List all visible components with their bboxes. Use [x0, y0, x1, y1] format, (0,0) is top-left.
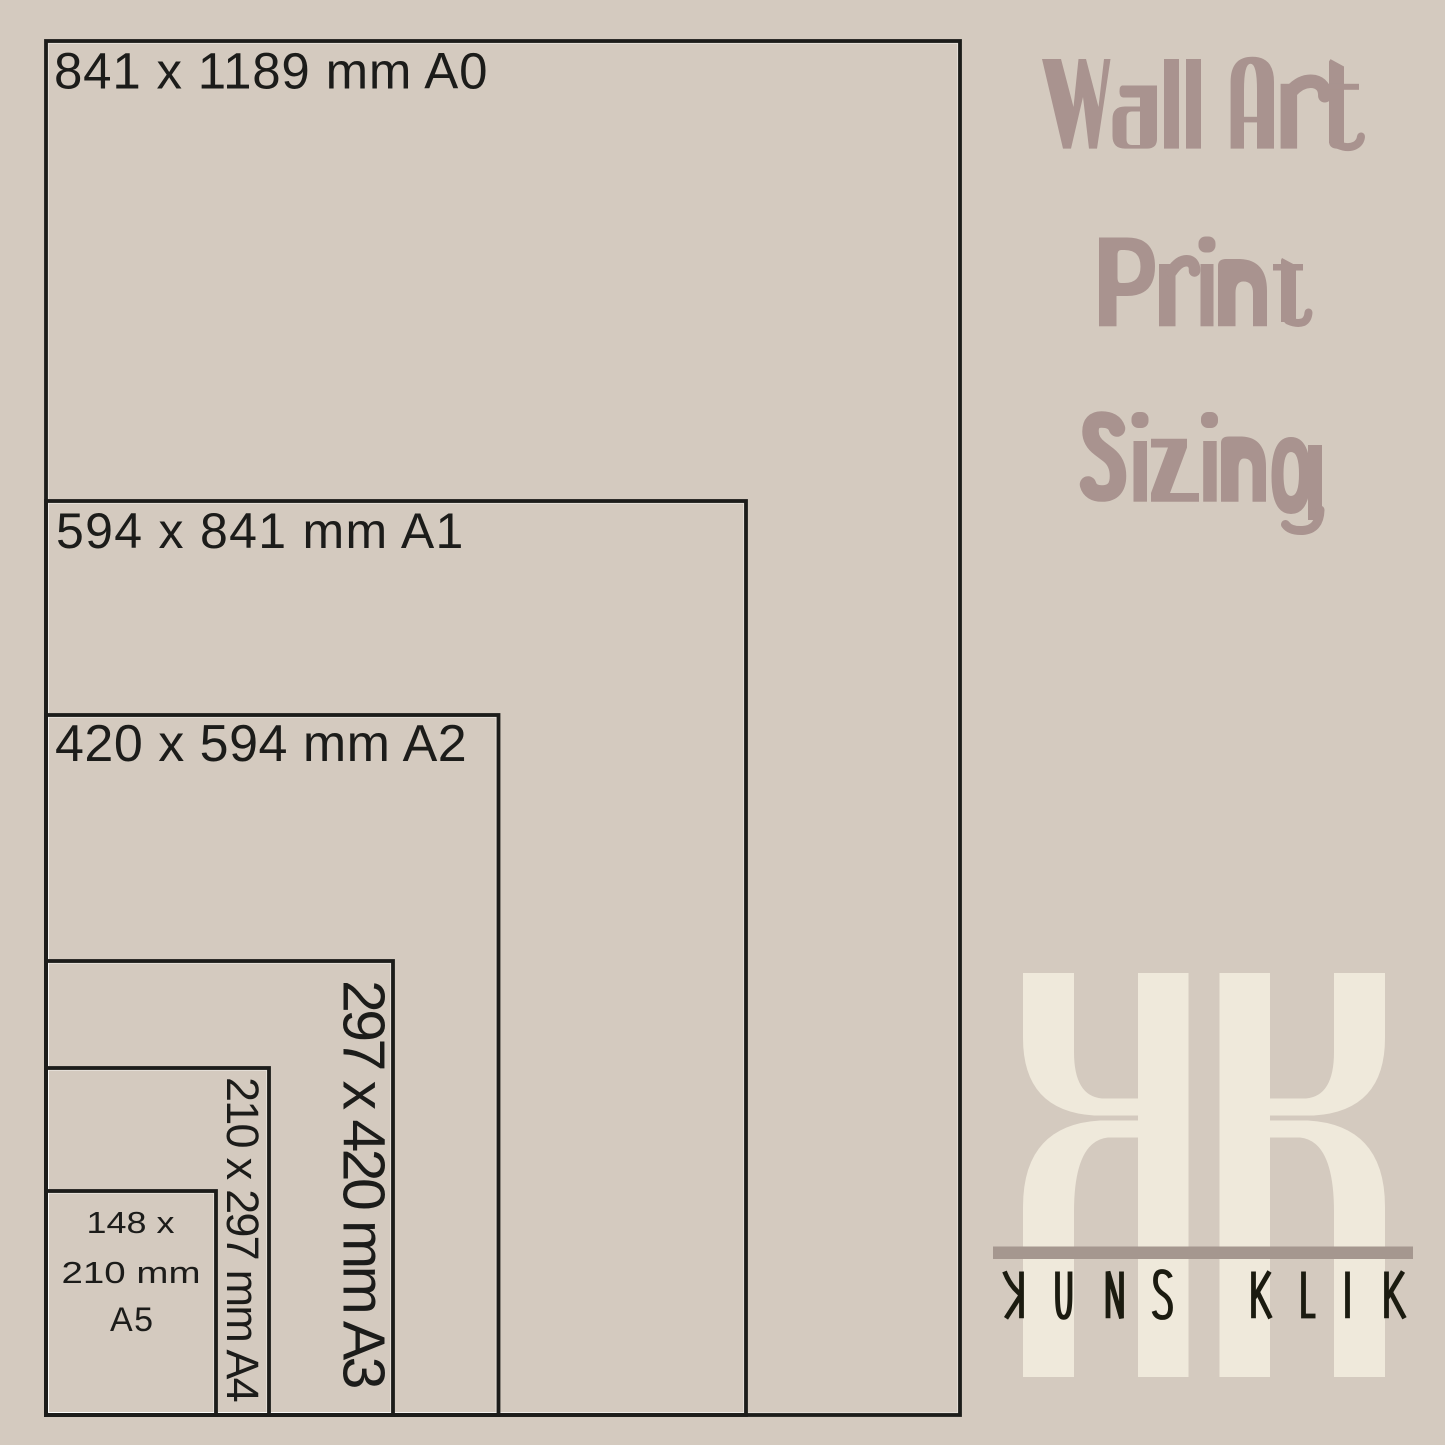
svg-text:594 x 841 mm A1: 594 x 841 mm A1 [56, 503, 465, 559]
svg-text:A5: A5 [110, 1301, 155, 1339]
svg-text:841 x 1189 mm A0: 841 x 1189 mm A0 [54, 43, 488, 100]
svg-text:148 x: 148 x [87, 1205, 176, 1240]
svg-text:297 x 420 mm A3: 297 x 420 mm A3 [331, 980, 397, 1388]
svg-text:210 mm: 210 mm [62, 1255, 201, 1290]
svg-text:420 x 594 mm A2: 420 x 594 mm A2 [55, 715, 467, 773]
svg-text:210 x 297 mm A4: 210 x 297 mm A4 [217, 1077, 268, 1402]
